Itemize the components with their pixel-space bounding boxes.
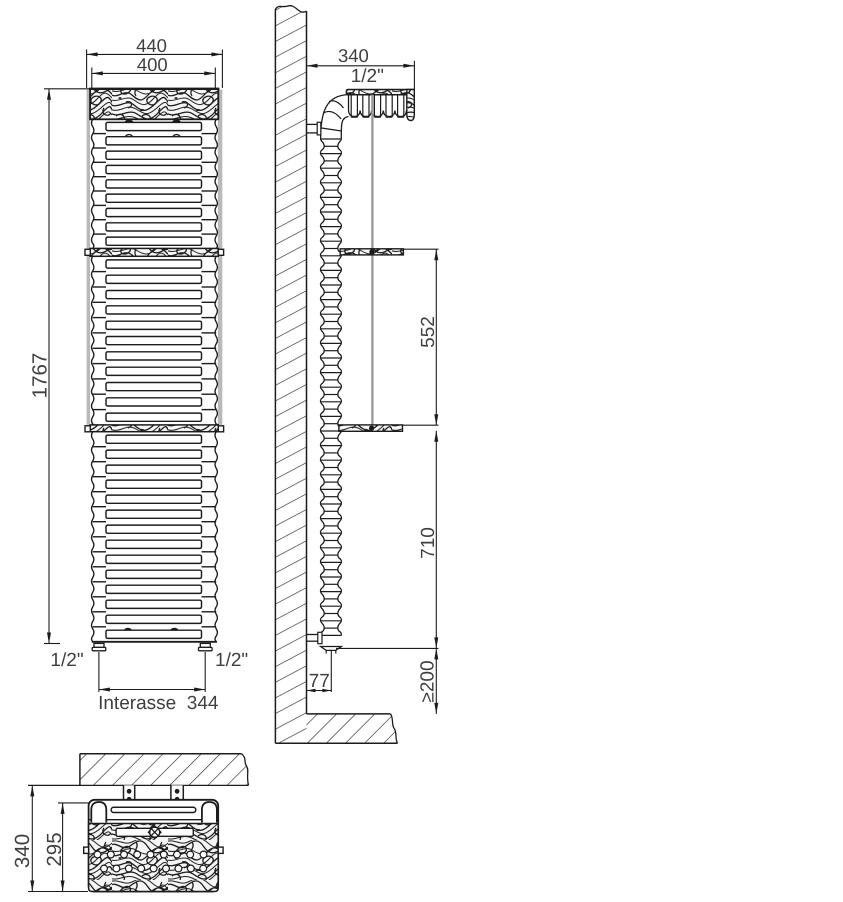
svg-text:1/2": 1/2" <box>50 650 83 671</box>
svg-text:552: 552 <box>418 316 439 348</box>
svg-text:1767: 1767 <box>28 353 51 399</box>
svg-text:77: 77 <box>309 671 330 692</box>
svg-text:Interasse 344: Interasse 344 <box>98 693 219 714</box>
svg-text:710: 710 <box>418 527 439 559</box>
svg-text:≥200: ≥200 <box>418 660 439 702</box>
svg-text:400: 400 <box>137 54 168 75</box>
svg-text:1/2": 1/2" <box>215 650 248 671</box>
svg-text:1/2": 1/2" <box>351 66 384 87</box>
svg-text:340: 340 <box>11 834 34 868</box>
svg-text:440: 440 <box>136 35 167 56</box>
svg-text:295: 295 <box>43 832 66 866</box>
svg-text:340: 340 <box>338 45 369 66</box>
